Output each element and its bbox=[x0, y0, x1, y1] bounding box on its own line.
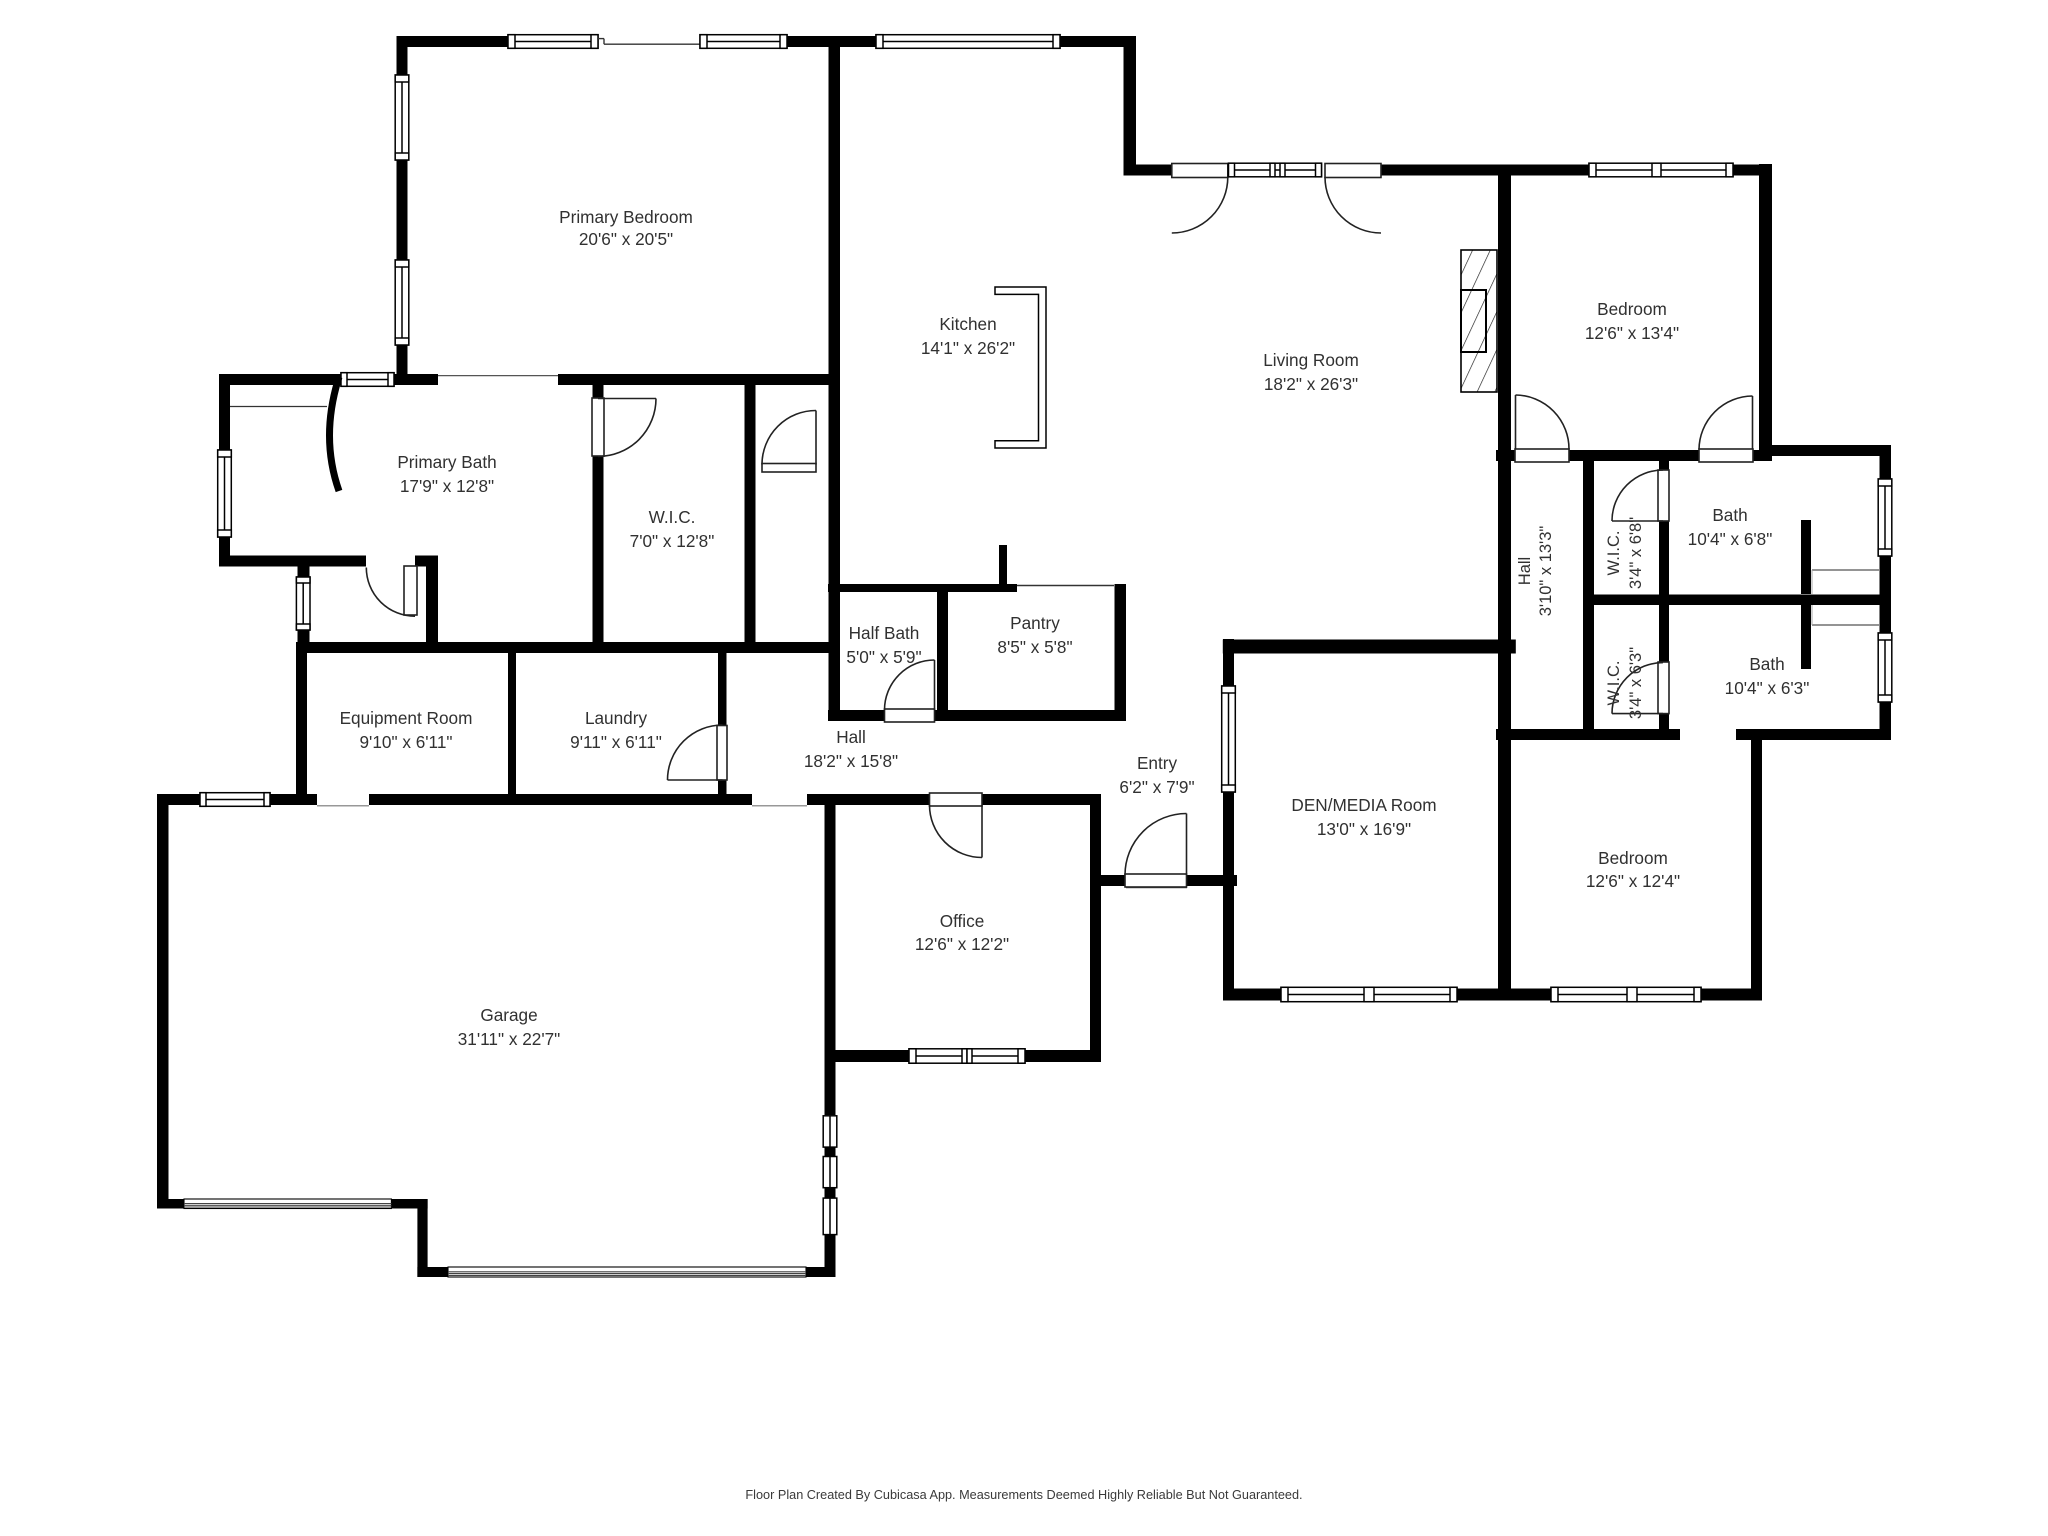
svg-text:17'9" x 12'8": 17'9" x 12'8" bbox=[400, 476, 494, 496]
svg-text:9'11" x 6'11": 9'11" x 6'11" bbox=[570, 732, 662, 752]
svg-text:12'6" x 12'4": 12'6" x 12'4" bbox=[1586, 871, 1680, 891]
svg-text:14'1" x 26'2": 14'1" x 26'2" bbox=[921, 338, 1015, 358]
svg-text:13'0" x 16'9": 13'0" x 16'9" bbox=[1317, 819, 1411, 839]
svg-text:18'2" x 15'8": 18'2" x 15'8" bbox=[804, 751, 898, 771]
svg-text:Primary Bedroom: Primary Bedroom bbox=[559, 207, 693, 227]
svg-text:7'0" x 12'8": 7'0" x 12'8" bbox=[630, 531, 715, 551]
svg-text:W.I.C.: W.I.C. bbox=[1605, 531, 1623, 576]
svg-text:W.I.C.: W.I.C. bbox=[1605, 661, 1623, 706]
svg-text:Entry: Entry bbox=[1137, 753, 1178, 773]
svg-text:20'6" x 20'5": 20'6" x 20'5" bbox=[579, 229, 673, 249]
svg-text:Primary Bath: Primary Bath bbox=[397, 452, 496, 472]
svg-text:Half Bath: Half Bath bbox=[849, 623, 920, 643]
svg-text:8'5" x 5'8": 8'5" x 5'8" bbox=[997, 637, 1072, 657]
svg-text:10'4" x 6'8": 10'4" x 6'8" bbox=[1688, 529, 1773, 549]
svg-text:Garage: Garage bbox=[480, 1005, 537, 1025]
svg-text:Living Room: Living Room bbox=[1263, 350, 1359, 370]
svg-text:9'10" x 6'11": 9'10" x 6'11" bbox=[360, 732, 453, 752]
svg-text:Bedroom: Bedroom bbox=[1597, 299, 1667, 319]
svg-text:DEN/MEDIA Room: DEN/MEDIA Room bbox=[1291, 795, 1436, 815]
svg-text:12'6" x 13'4": 12'6" x 13'4" bbox=[1585, 323, 1679, 343]
svg-text:3'10" x 13'3": 3'10" x 13'3" bbox=[1537, 526, 1555, 617]
svg-text:18'2" x 26'3": 18'2" x 26'3" bbox=[1264, 374, 1358, 394]
svg-text:Bedroom: Bedroom bbox=[1598, 848, 1668, 868]
svg-text:3'4" x 6'3": 3'4" x 6'3" bbox=[1627, 647, 1645, 719]
svg-text:Laundry: Laundry bbox=[585, 708, 648, 728]
svg-text:6'2" x 7'9": 6'2" x 7'9" bbox=[1119, 777, 1194, 797]
svg-text:Bath: Bath bbox=[1749, 654, 1784, 674]
svg-text:Floor Plan Created By Cubicasa: Floor Plan Created By Cubicasa App. Meas… bbox=[745, 1488, 1302, 1502]
svg-text:3'4" x 6'8": 3'4" x 6'8" bbox=[1627, 517, 1645, 589]
svg-text:Office: Office bbox=[940, 911, 985, 931]
svg-text:10'4" x 6'3": 10'4" x 6'3" bbox=[1725, 678, 1810, 698]
svg-text:Hall: Hall bbox=[1516, 557, 1534, 585]
svg-text:Hall: Hall bbox=[836, 727, 866, 747]
svg-text:12'6" x 12'2": 12'6" x 12'2" bbox=[915, 934, 1009, 954]
svg-text:Pantry: Pantry bbox=[1010, 613, 1060, 633]
svg-text:W.I.C.: W.I.C. bbox=[649, 507, 696, 527]
svg-text:Bath: Bath bbox=[1712, 505, 1747, 525]
svg-text:Equipment Room: Equipment Room bbox=[340, 708, 473, 728]
svg-text:Kitchen: Kitchen bbox=[939, 314, 996, 334]
svg-text:5'0" x 5'9": 5'0" x 5'9" bbox=[846, 647, 921, 667]
svg-text:31'11" x 22'7": 31'11" x 22'7" bbox=[458, 1029, 561, 1049]
